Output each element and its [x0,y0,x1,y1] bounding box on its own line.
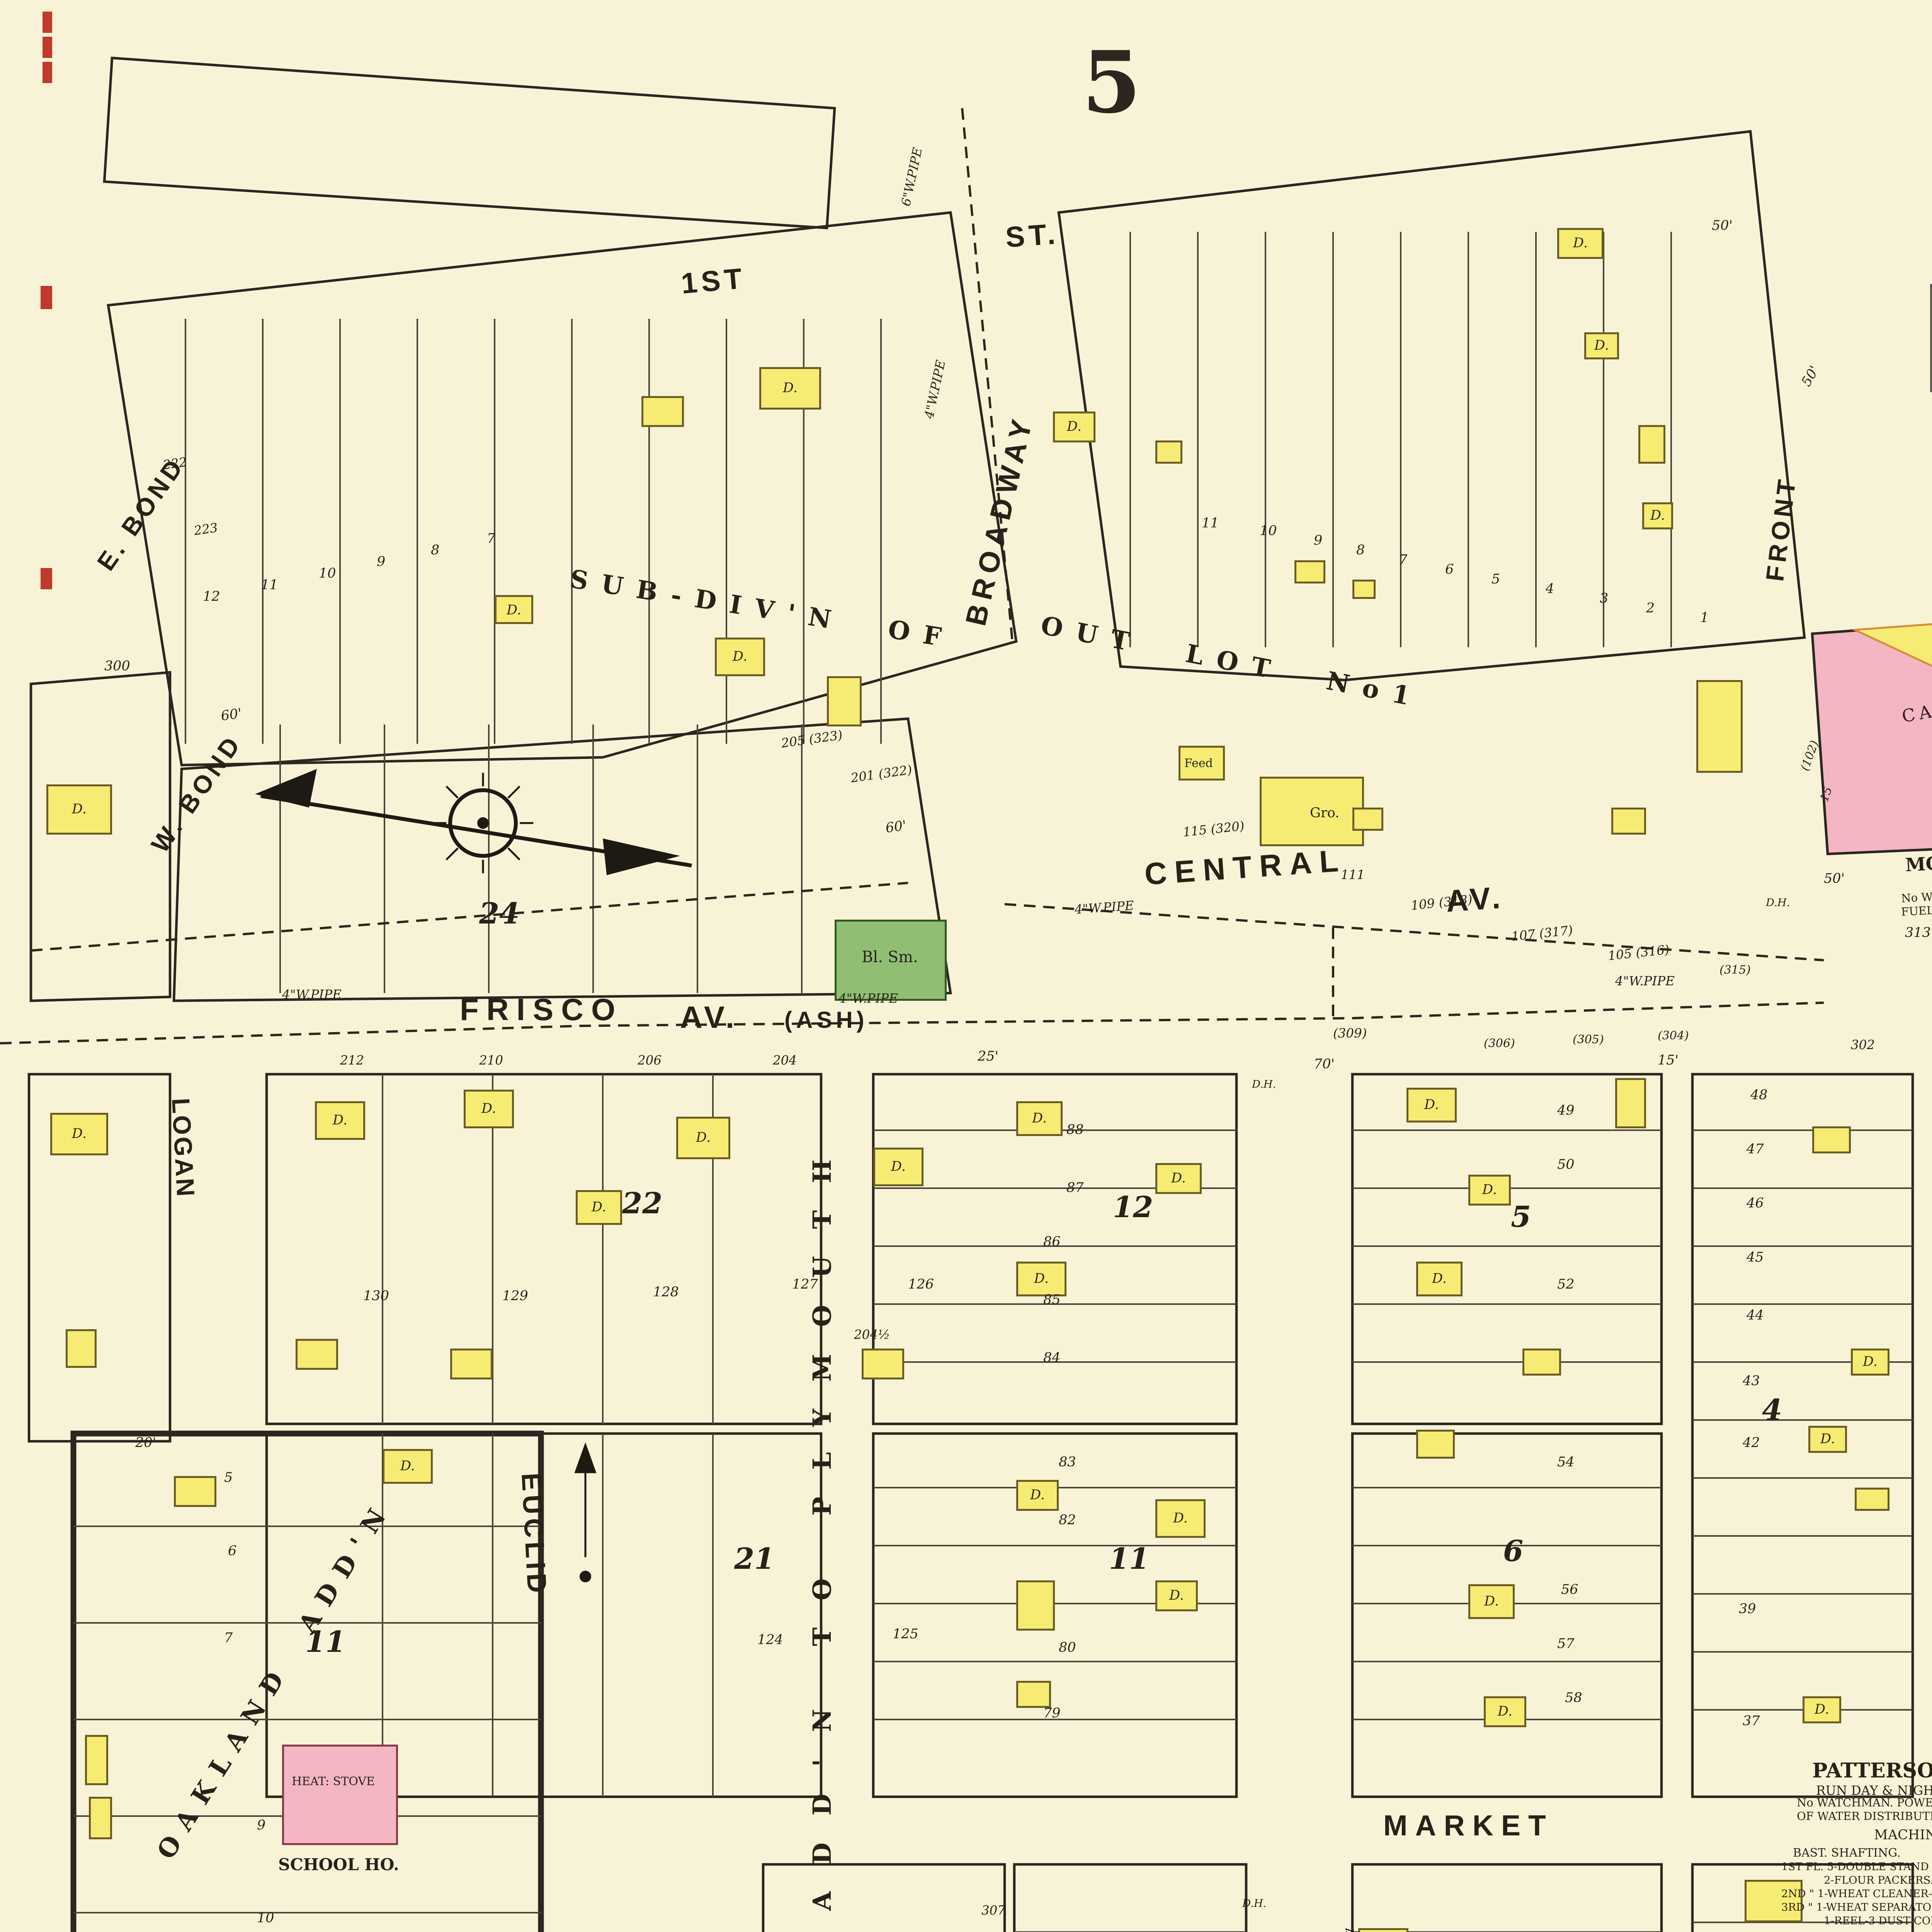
lot-number: 10 [319,568,336,582]
building [282,1745,398,1845]
building [1016,1580,1055,1631]
lot-number: 7 [224,1633,233,1646]
lot-number: 39 [1739,1604,1756,1617]
building-d: D. [1584,332,1619,359]
street-label-st: ST. [1005,220,1060,253]
building-d: D. [1016,1262,1066,1296]
lot-number: 88 [1066,1124,1084,1138]
map-note: 223 [193,522,219,538]
map-note: 212 [340,1055,364,1068]
map-note: 210 [479,1055,503,1068]
building-d: D. [1851,1349,1889,1376]
building [296,1339,338,1370]
building [1352,808,1383,831]
block-number-24: 24 [479,900,519,929]
street-label-av: AV. [680,1005,738,1036]
map-note: 60' [220,708,243,724]
lot-number: 11 [261,580,278,593]
building [1416,1430,1455,1459]
map-note: (305) [1573,1036,1604,1047]
edge-marks [41,12,52,1932]
map-note: (309) [1333,1028,1367,1041]
lot-number: 8 [1356,545,1365,558]
lot-number: 49 [1557,1105,1575,1119]
north-arrow [576,1445,632,1932]
building-d: D. [715,638,765,676]
lot-number: 6 [1445,564,1454,578]
lot-number: 2 [1646,603,1655,616]
street-label-1st: 1ST [680,265,747,299]
block-number-4: 4 [1762,1397,1782,1426]
building [89,1797,112,1839]
building-d: D. [759,367,821,410]
lot-number: 58 [1565,1692,1582,1706]
building-d: D. [676,1117,730,1159]
landmark-gro: Gro. [1310,808,1339,821]
lot-number: 86 [1043,1236,1061,1250]
lot-number: 44 [1747,1310,1764,1323]
landmark-1-reel-3-dust-collectors: 1-REEL-3 DUST COLLECTORS [1824,1918,1932,1929]
building-d: D. [873,1148,923,1186]
building [1696,680,1743,773]
block-number-21: 21 [734,1546,774,1575]
map-note: 206 [638,1055,662,1068]
canning-factory-parcel [1812,607,1932,854]
map-note: 204½ [854,1329,890,1342]
landmark-2-flour-packers-1-branpacker: 2-FLOUR PACKERS. 1 BRANPACKER [1824,1878,1932,1889]
lot-number: 42 [1743,1437,1760,1451]
lot-number: 6 [228,1546,236,1559]
building-d: D. [1358,1928,1408,1932]
map-note: 70' [1314,1059,1335,1072]
lot-number: 5 [1492,574,1500,587]
lot-number: 11 [1202,518,1219,531]
lot-number: 83 [1059,1457,1076,1470]
lot-number: 127 [792,1279,818,1293]
block-number-11: 11 [305,1629,345,1658]
lot-number: 87 [1066,1182,1084,1196]
landmark-of-water-distributed-lights-electric: OF WATER DISTRIBUTED- LIGHTS: ELECTRIC- [1797,1814,1932,1825]
building [1155,440,1182,464]
building-d: D. [1642,502,1673,529]
building-d: D. [1808,1426,1847,1453]
lot-number: 43 [1743,1376,1760,1389]
lot-number: 125 [893,1629,918,1642]
lot-number: 85 [1043,1294,1061,1308]
landmark-run-day-night-capy-100-bbls: RUN DAY & NIGHT. CAPY 100 BBLS. [1816,1785,1932,1798]
building-d: D. [383,1449,433,1484]
building-d: D. [1468,1584,1515,1619]
map-note: 60' [885,820,908,836]
lot-number: 80 [1059,1642,1076,1656]
building [66,1329,97,1368]
block-number-22: 22 [622,1190,662,1219]
building-d: D. [576,1190,622,1225]
building-d: D. [1016,1101,1063,1136]
building [1615,1078,1646,1128]
map-note: 313 [1905,927,1931,941]
block-number-12: 12 [1113,1194,1153,1223]
sanborn-map-sheet: D.D.D.D.D.D.D.D.D.D.D.D.D.D.D.D.D.D.D.D.… [0,0,1932,1932]
landmark-3rd-1-wheat-separator-scourer-2-flour-sifters: 3RD " 1-WHEAT SEPARATOR-SCOURER. 2 FLOUR… [1781,1905,1932,1916]
lot-number: 52 [1557,1279,1575,1293]
building-d: D. [464,1090,514,1128]
map-note: (306) [1484,1039,1515,1051]
building-d: D. [50,1113,108,1155]
lot-number: 47 [1747,1144,1764,1157]
lot-number: 84 [1043,1352,1061,1366]
building-d: D. [1468,1175,1511,1206]
building [1522,1349,1561,1376]
landmark-patterson-milling-co: PATTERSON MILLING CO. [1812,1762,1932,1782]
building-d: D. [1155,1163,1202,1194]
map-note: (315) [1719,966,1751,978]
lot-number: 8 [431,545,439,558]
lot-number: 12 [203,591,220,605]
lot-number: 56 [1561,1584,1578,1598]
map-note: 50' [1824,873,1845,887]
building [1352,580,1376,599]
lot-number: 126 [908,1279,934,1293]
lot-number: 124 [757,1634,783,1648]
building-d: D. [495,595,533,624]
block-number-6: 6 [1503,1538,1523,1567]
lot-number: 3 [1600,593,1608,607]
landmark-1st-fl-5-double-stand-rolls-1-3-high-corn-roll: 1ST FL. 5-DOUBLE STAND ROLLS. 1-3 HIGH C… [1781,1864,1932,1875]
lot-number: 48 [1750,1090,1768,1103]
lot-number: 7 [487,533,495,547]
lot-number: 79 [1043,1708,1061,1721]
lot-number: 46 [1747,1198,1764,1211]
landmark-machinery: MACHINERY [1874,1830,1932,1843]
map-note: 111 [1341,869,1365,882]
lot-number: 128 [653,1287,679,1300]
street-label-frisco: FRISCO [460,997,623,1028]
building [827,676,862,726]
map-note: 4"W.PIPE [1615,976,1675,988]
lot-number: 130 [363,1291,389,1304]
building [85,1735,108,1785]
lot-number: 129 [502,1291,528,1304]
building-d: D. [46,784,112,835]
lot-number: 4 [1546,583,1554,597]
landmark-heat-stove: HEAT: STOVE [292,1777,375,1789]
lot-number: 5 [224,1472,233,1486]
lot-number: 37 [1743,1716,1760,1729]
lot-number: 9 [377,556,385,570]
building [1855,1488,1889,1511]
compass-rose [255,769,692,875]
map-note: 204 [773,1055,797,1068]
building-d: D. [1803,1696,1841,1723]
map-note: 307 [981,1905,1005,1918]
lot-number: 9 [257,1820,265,1833]
map-note: 20' [135,1437,156,1451]
block-number-11: 11 [1109,1546,1149,1575]
map-note: 25' [978,1051,998,1065]
building-d: D. [315,1101,365,1140]
building [862,1349,904,1379]
map-note: D.H. [1242,1901,1267,1912]
building [641,396,684,427]
street-label-market: MARKET [1383,1812,1554,1841]
addition-label-wither-s-first-add-n-to-plymouth: WITHER'S FIRST ADD'N TO PLYMOUTH [811,1133,837,1932]
building-d: D. [1155,1499,1206,1538]
map-note: (304) [1658,1032,1689,1043]
map-note: 15' [1658,1055,1679,1068]
building [450,1349,493,1379]
landmark-feed: Feed [1184,759,1213,771]
map-note: 4"W.PIPE [838,993,898,1006]
adjacent-sheet-number: 5 [1082,43,1141,128]
building [1638,425,1665,464]
map-note: D.H. [1252,1082,1276,1093]
building-d: D. [1406,1088,1457,1122]
landmark-bl-sm: Bl. Sm. [862,951,918,966]
lot-number: 1 [1700,612,1709,626]
map-note: 302 [1851,1039,1875,1052]
landmark-2nd-1-wheat-cleaner-2-suction-fans-1-purifier: 2ND " 1-WHEAT CLEANER-2 SUCTION FANS. 1 … [1781,1891,1932,1902]
building-d: D. [1416,1262,1463,1296]
building [174,1476,216,1507]
street-label-ash: (ASH) [784,1009,868,1032]
map-note: 50' [1712,220,1733,234]
building-d: D. [1484,1696,1526,1727]
street-label-euclid: EUCLID [518,1472,551,1597]
lot-number: 82 [1059,1515,1076,1528]
building-d: D. [1053,412,1095,442]
building-d: D. [1155,1580,1198,1611]
block-number-5: 5 [1511,1204,1531,1233]
lot-number: 54 [1557,1457,1575,1470]
map-note: 300 [104,661,130,674]
building-d: D. [1557,228,1604,259]
map-note: 4"W.PIPE [282,989,342,1002]
lot-number: 10 [1260,526,1277,539]
map-note: 222 [162,456,188,472]
landmark-school-ho: SCHOOL HO. [278,1859,399,1875]
lot-number: 45 [1747,1252,1764,1265]
building [1812,1126,1851,1153]
building [1016,1681,1051,1708]
building [1611,808,1646,835]
lot-number: 7 [1399,554,1407,568]
map-note: D.H. [1766,900,1790,911]
lot-number: 9 [1314,535,1322,549]
lot-number: 50 [1557,1159,1575,1173]
landmark-no-watchman-power-steam-fuel-coal-bbls: No WATCHMAN. POWER: STEAM: FUEL: COAL: B… [1797,1801,1932,1812]
landmark-bast-shafting: BAST. SHAFTING. [1793,1849,1901,1861]
lot-number: 10 [257,1913,274,1926]
street-label-logan: LOGAN [168,1097,199,1199]
building-d: D. [1016,1480,1059,1511]
lot-number: 57 [1557,1638,1575,1652]
building [1294,560,1325,583]
